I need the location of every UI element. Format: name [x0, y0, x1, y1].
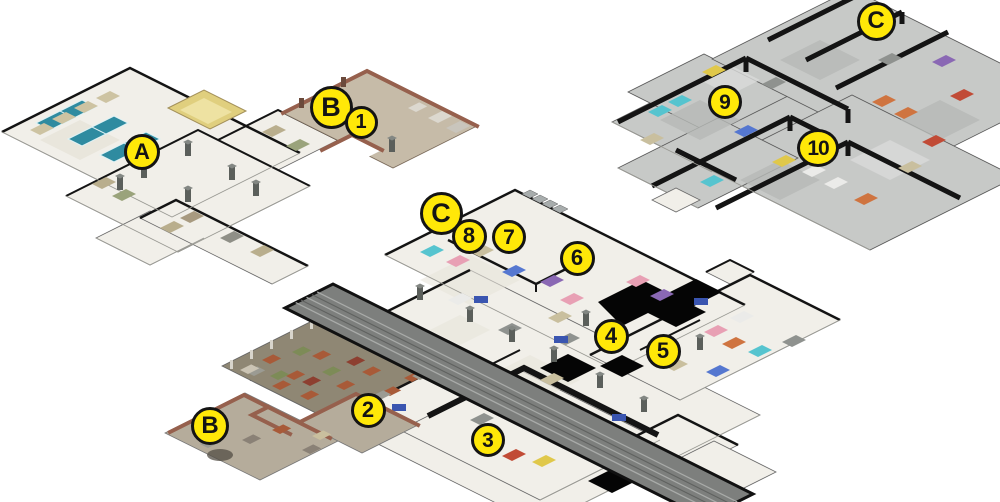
map-marker-10[interactable]: 10	[797, 129, 839, 167]
marker-layer: AB1C910C8764523B	[0, 0, 1000, 502]
game-map-image: AB1C910C8764523B	[0, 0, 1000, 502]
map-marker-5[interactable]: 5	[646, 334, 681, 369]
map-marker-B2[interactable]: B	[191, 407, 229, 445]
map-marker-7[interactable]: 7	[492, 220, 526, 254]
map-marker-C1[interactable]: C	[857, 2, 896, 41]
map-marker-4[interactable]: 4	[594, 319, 629, 354]
map-marker-9[interactable]: 9	[708, 85, 742, 119]
map-marker-A[interactable]: A	[124, 134, 160, 170]
map-marker-3[interactable]: 3	[471, 423, 505, 457]
map-marker-2[interactable]: 2	[351, 393, 386, 428]
map-marker-6[interactable]: 6	[560, 241, 595, 276]
map-marker-8[interactable]: 8	[452, 219, 487, 254]
map-marker-1[interactable]: 1	[345, 106, 378, 139]
